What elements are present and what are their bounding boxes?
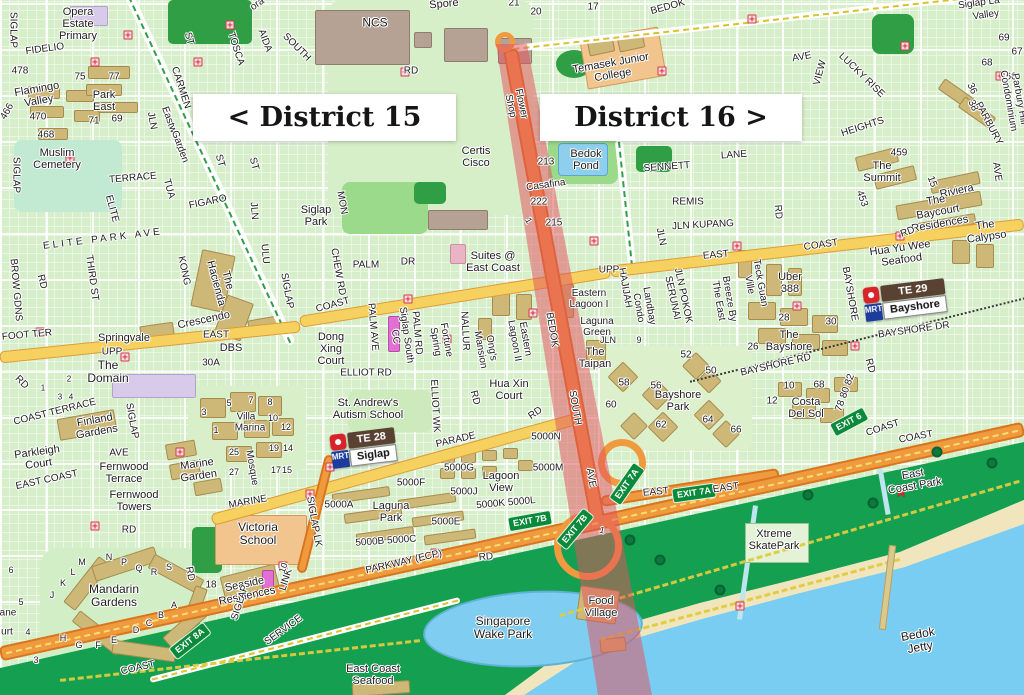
- tree-icon: [987, 458, 998, 469]
- poi-cross-marker-icon: +: [431, 549, 440, 558]
- poi-cross-marker-icon: +: [124, 31, 133, 40]
- poi-cross-marker-icon: +: [91, 522, 100, 531]
- poi-cross-marker-icon: +: [279, 562, 288, 571]
- poi-cross-marker-icon: +: [36, 328, 45, 337]
- poi-cross-marker-icon: +: [736, 602, 745, 611]
- poi-cross-marker-icon: +: [91, 58, 100, 67]
- east-coast-park-star-icon: ★: [894, 484, 908, 500]
- poi-cross-marker-icon: +: [443, 335, 452, 344]
- district-16-label: District 16 >: [574, 102, 768, 133]
- map: < District 15 District 16 > Opera Estate…: [0, 0, 1024, 695]
- poi-cross-marker-icon: +: [176, 448, 185, 457]
- poi-cross-marker-icon: +: [851, 342, 860, 351]
- tree-icon: [868, 498, 879, 509]
- poi-cross-marker-icon: +: [658, 67, 667, 76]
- poi-cross-marker-icon: +: [793, 302, 802, 311]
- district-15-label: < District 15: [228, 102, 422, 133]
- poi-cross-marker-icon: +: [66, 154, 75, 163]
- tree-icon: [803, 490, 814, 501]
- poi-cross-marker-icon: +: [404, 295, 413, 304]
- poi-cross-marker-icon: +: [529, 309, 538, 318]
- poi-cross-marker-icon: +: [306, 490, 315, 499]
- poi-cross-marker-icon: +: [121, 353, 130, 362]
- poi-cross-marker-icon: +: [748, 15, 757, 24]
- mrt-logo-icon: [862, 286, 880, 304]
- poi-cross-marker-icon: +: [896, 232, 905, 241]
- poi-cross-marker-icon: +: [194, 58, 203, 67]
- district-15-sign: < District 15: [193, 94, 456, 141]
- tree-icon: [625, 535, 636, 546]
- mrt-tag: MRT: [331, 450, 350, 469]
- poi-cross-marker-icon: +: [996, 72, 1005, 81]
- poi-cross-marker-icon: +: [401, 68, 410, 77]
- mrt-tag: MRT: [864, 303, 883, 322]
- tree-icon: [655, 555, 666, 566]
- mrt-logo-icon: [329, 433, 347, 451]
- poi-cross-marker-icon: +: [901, 42, 910, 51]
- poi-cross-marker-icon: +: [733, 242, 742, 251]
- district-16-sign: District 16 >: [540, 94, 802, 141]
- tree-icon: [715, 585, 726, 596]
- poi-cross-marker-icon: +: [590, 237, 599, 246]
- tree-icon: [932, 447, 943, 458]
- poi-cross-marker-icon: +: [226, 21, 235, 30]
